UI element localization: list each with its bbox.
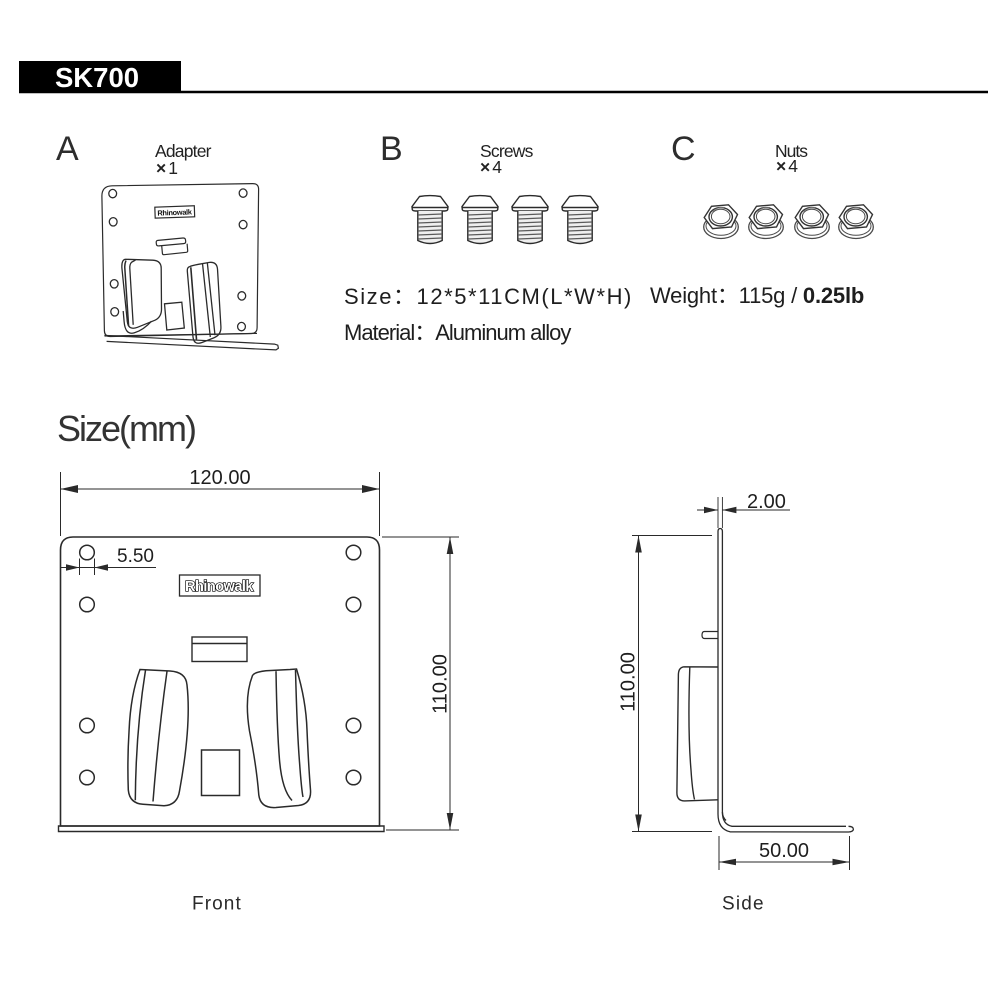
svg-text:2.00: 2.00 xyxy=(747,491,786,513)
svg-text:110.00: 110.00 xyxy=(430,654,452,714)
svg-text:Side: Side xyxy=(722,894,765,915)
svg-text:SK700: SK700 xyxy=(55,62,139,93)
svg-text:50.00: 50.00 xyxy=(759,840,809,862)
svg-text:B: B xyxy=(380,130,403,168)
svg-text:120.00: 120.00 xyxy=(189,467,250,489)
svg-text:Rhinowalk: Rhinowalk xyxy=(157,207,193,217)
svg-text:A: A xyxy=(56,130,79,168)
svg-text:Weight：115g / 0.25lb: Weight：115g / 0.25lb xyxy=(650,283,864,308)
svg-text:110.00: 110.00 xyxy=(618,652,640,712)
svg-text:Size(mm): Size(mm) xyxy=(57,408,195,449)
svg-text:C: C xyxy=(671,130,696,168)
svg-text:×1: ×1 xyxy=(156,158,178,178)
svg-text:Front: Front xyxy=(192,894,242,915)
svg-text:Material：Aluminum alloy: Material：Aluminum alloy xyxy=(344,320,571,345)
svg-text:5.50: 5.50 xyxy=(117,546,154,567)
svg-text:Rhinowalk: Rhinowalk xyxy=(185,579,254,595)
svg-text:Size：12*5*11CM(L*W*H): Size：12*5*11CM(L*W*H) xyxy=(344,284,633,309)
